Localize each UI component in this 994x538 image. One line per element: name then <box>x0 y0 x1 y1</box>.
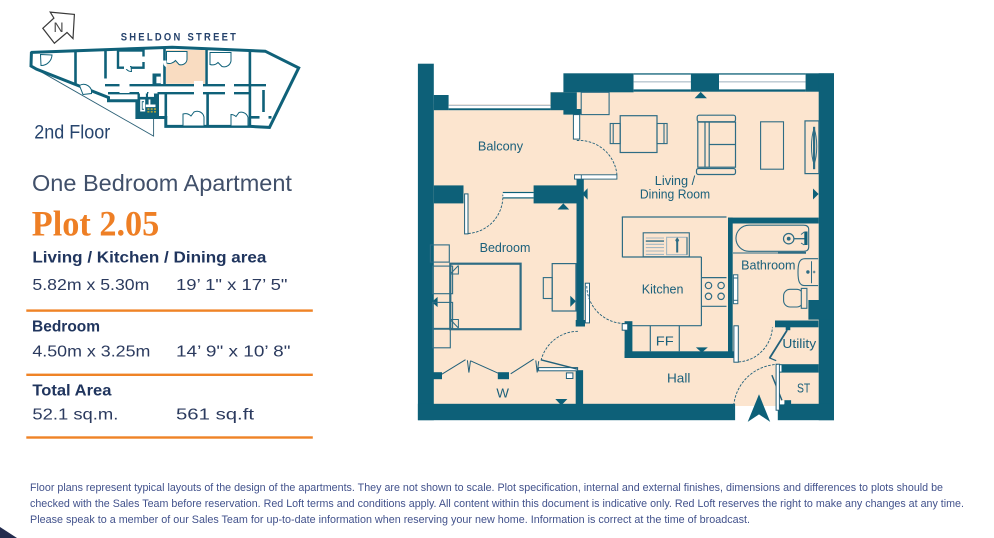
svg-text:Kitchen: Kitchen <box>642 281 684 296</box>
svg-text:19’ 1" x 17’ 5": 19’ 1" x 17’ 5" <box>176 277 288 294</box>
svg-text:FF: FF <box>656 334 674 349</box>
svg-text:Plot 2.05: Plot 2.05 <box>32 204 160 244</box>
svg-text:4.50m x 3.25m: 4.50m x 3.25m <box>32 344 150 361</box>
svg-text:5.82m x 5.30m: 5.82m x 5.30m <box>32 277 149 294</box>
svg-text:2nd Floor: 2nd Floor <box>34 123 111 144</box>
svg-text:Balcony: Balcony <box>478 139 524 154</box>
svg-text:Floor plans represent typical: Floor plans represent typical layouts of… <box>30 482 943 494</box>
svg-text:14’ 9" x 10’ 8": 14’ 9" x 10’ 8" <box>176 344 291 361</box>
svg-text:Bedroom: Bedroom <box>480 240 531 255</box>
svg-text:561 sq.ft: 561 sq.ft <box>176 407 255 424</box>
svg-text:One Bedroom Apartment: One Bedroom Apartment <box>32 170 292 196</box>
svg-text:Hall: Hall <box>667 371 691 386</box>
svg-text:Bedroom: Bedroom <box>32 319 100 336</box>
svg-text:52.1 sq.m.: 52.1 sq.m. <box>32 407 118 424</box>
svg-text:Living / Kitchen / Dining area: Living / Kitchen / Dining area <box>32 250 266 267</box>
svg-text:W: W <box>496 385 509 400</box>
svg-text:checked with the Sales Team be: checked with the Sales Team before reser… <box>30 498 964 510</box>
svg-text:Dining Room: Dining Room <box>640 187 710 202</box>
svg-text:Please speak to a member of ou: Please speak to a member of our Sales Te… <box>30 514 750 526</box>
svg-text:ST: ST <box>797 381 810 396</box>
svg-text:Total Area: Total Area <box>32 383 111 400</box>
svg-text:Utility: Utility <box>782 336 816 351</box>
svg-text:SHELDON STREET: SHELDON STREET <box>121 31 239 43</box>
svg-text:N: N <box>53 19 63 35</box>
svg-text:Bathroom: Bathroom <box>741 257 795 272</box>
